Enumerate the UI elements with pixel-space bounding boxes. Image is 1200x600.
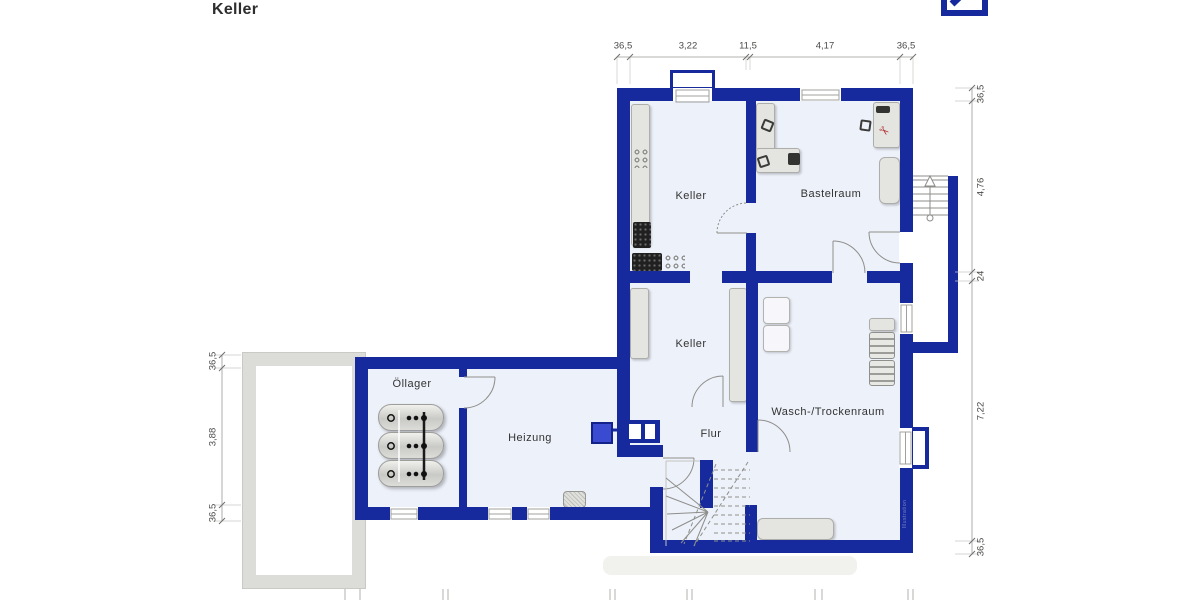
window-gap [899,303,913,334]
window-gap [390,507,418,520]
window-gap [488,507,512,520]
floor-door-gap [650,457,663,487]
room-label-oellager: Öllager [393,378,432,390]
wall-partition [746,233,756,271]
stair-newel-wall [700,460,713,508]
dim-label: 36,5 [614,41,633,52]
wall-segment [355,507,390,520]
wall-segment [841,88,913,101]
window-gap [527,507,550,520]
freezer-box [763,325,790,352]
window-bump [670,70,715,90]
dim-label: 7,22 [976,402,987,421]
tool-box [788,153,800,165]
dim-label: 4,17 [816,41,835,52]
desk-device [876,106,890,113]
floorplan-page: ✂ [0,0,1200,600]
wall-segment [867,271,913,283]
window-gap [673,88,712,101]
door-gap [899,232,913,263]
wall-segment [913,342,958,353]
dim-label: 36,5 [208,504,219,523]
oil-tank [378,432,444,459]
bench [757,518,834,540]
wall-east-upper [900,101,913,232]
wall-segment [712,88,800,101]
wall-segment [418,507,488,520]
dim-label: 3,22 [679,41,698,52]
dim-label: 11,5 [739,41,757,52]
wall-partition [746,101,756,203]
dim-label: 3,88 [208,428,219,447]
wall-segment [722,271,832,283]
oil-tank [378,460,444,487]
exterior-structure [243,353,365,588]
wall-partition [746,283,758,452]
floor-drain [563,491,586,508]
room-label-flur: Flur [701,428,722,440]
chair-icon [859,119,871,131]
window-gap [899,428,912,468]
wall-south [650,540,913,553]
deutsche-bank-slash-icon [941,0,988,16]
dim-label: 36,5 [897,41,916,52]
freezer-box [763,297,790,324]
exterior-staircase [913,176,948,221]
wall-segment [617,445,663,457]
wall-west-lower [355,369,368,520]
window-gap [800,88,841,101]
storage-crate [633,222,651,248]
wall-oellager-partition [459,408,467,507]
boiler [591,422,613,444]
room-label-bastelraum: Bastelraum [801,188,862,200]
wall-exterior-stair [948,176,958,353]
washer-top-panel [869,318,895,331]
washing-machine [869,332,895,359]
dryer [869,360,895,386]
wall-segment [617,271,690,283]
shelf [630,288,649,359]
dim-label: 36,5 [976,538,987,557]
dim-label: 4,76 [976,178,987,197]
cabinet [879,157,900,204]
wall-segment [355,357,630,369]
dim-label: 24 [976,271,987,282]
storage-crate [632,253,662,271]
chimney-flue [645,424,655,439]
room-label-keller-mid: Keller [675,338,706,350]
bottom-dimension-ticks [345,589,913,600]
window-bump [909,427,929,469]
dim-label: 36,5 [208,352,219,371]
watermark: Illustration [902,500,908,529]
dim-label: 36,5 [976,85,987,104]
room-label-wasch-trockenraum: Wasch-/Trockenraum [771,406,884,418]
wall-segment [617,88,673,101]
chimney-flue [629,424,641,439]
wall-segment [900,333,913,428]
wall-segment [550,507,663,520]
wall-segment [900,263,913,303]
jars-icon [633,148,649,168]
wall-segment [459,369,467,377]
oil-tank [378,404,444,431]
page-title: Keller [212,1,258,19]
room-label-keller-top: Keller [675,190,706,202]
wall-segment [512,507,527,520]
shelf [729,288,747,402]
bottle-rings-icon [664,254,685,269]
room-label-heizung: Heizung [508,432,552,444]
exterior-pad [603,556,857,575]
